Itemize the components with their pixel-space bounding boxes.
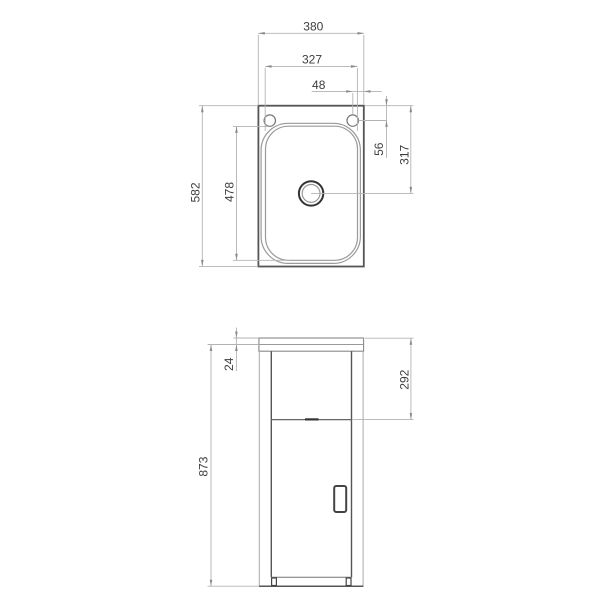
svg-text:56: 56 [372, 142, 386, 156]
svg-text:292: 292 [397, 369, 411, 389]
svg-text:327: 327 [302, 53, 322, 67]
svg-text:380: 380 [303, 20, 323, 34]
svg-text:317: 317 [398, 144, 412, 164]
svg-text:582: 582 [189, 182, 203, 202]
svg-text:48: 48 [312, 78, 326, 92]
svg-text:478: 478 [223, 182, 237, 202]
svg-text:24: 24 [222, 357, 236, 371]
svg-text:873: 873 [197, 456, 211, 476]
